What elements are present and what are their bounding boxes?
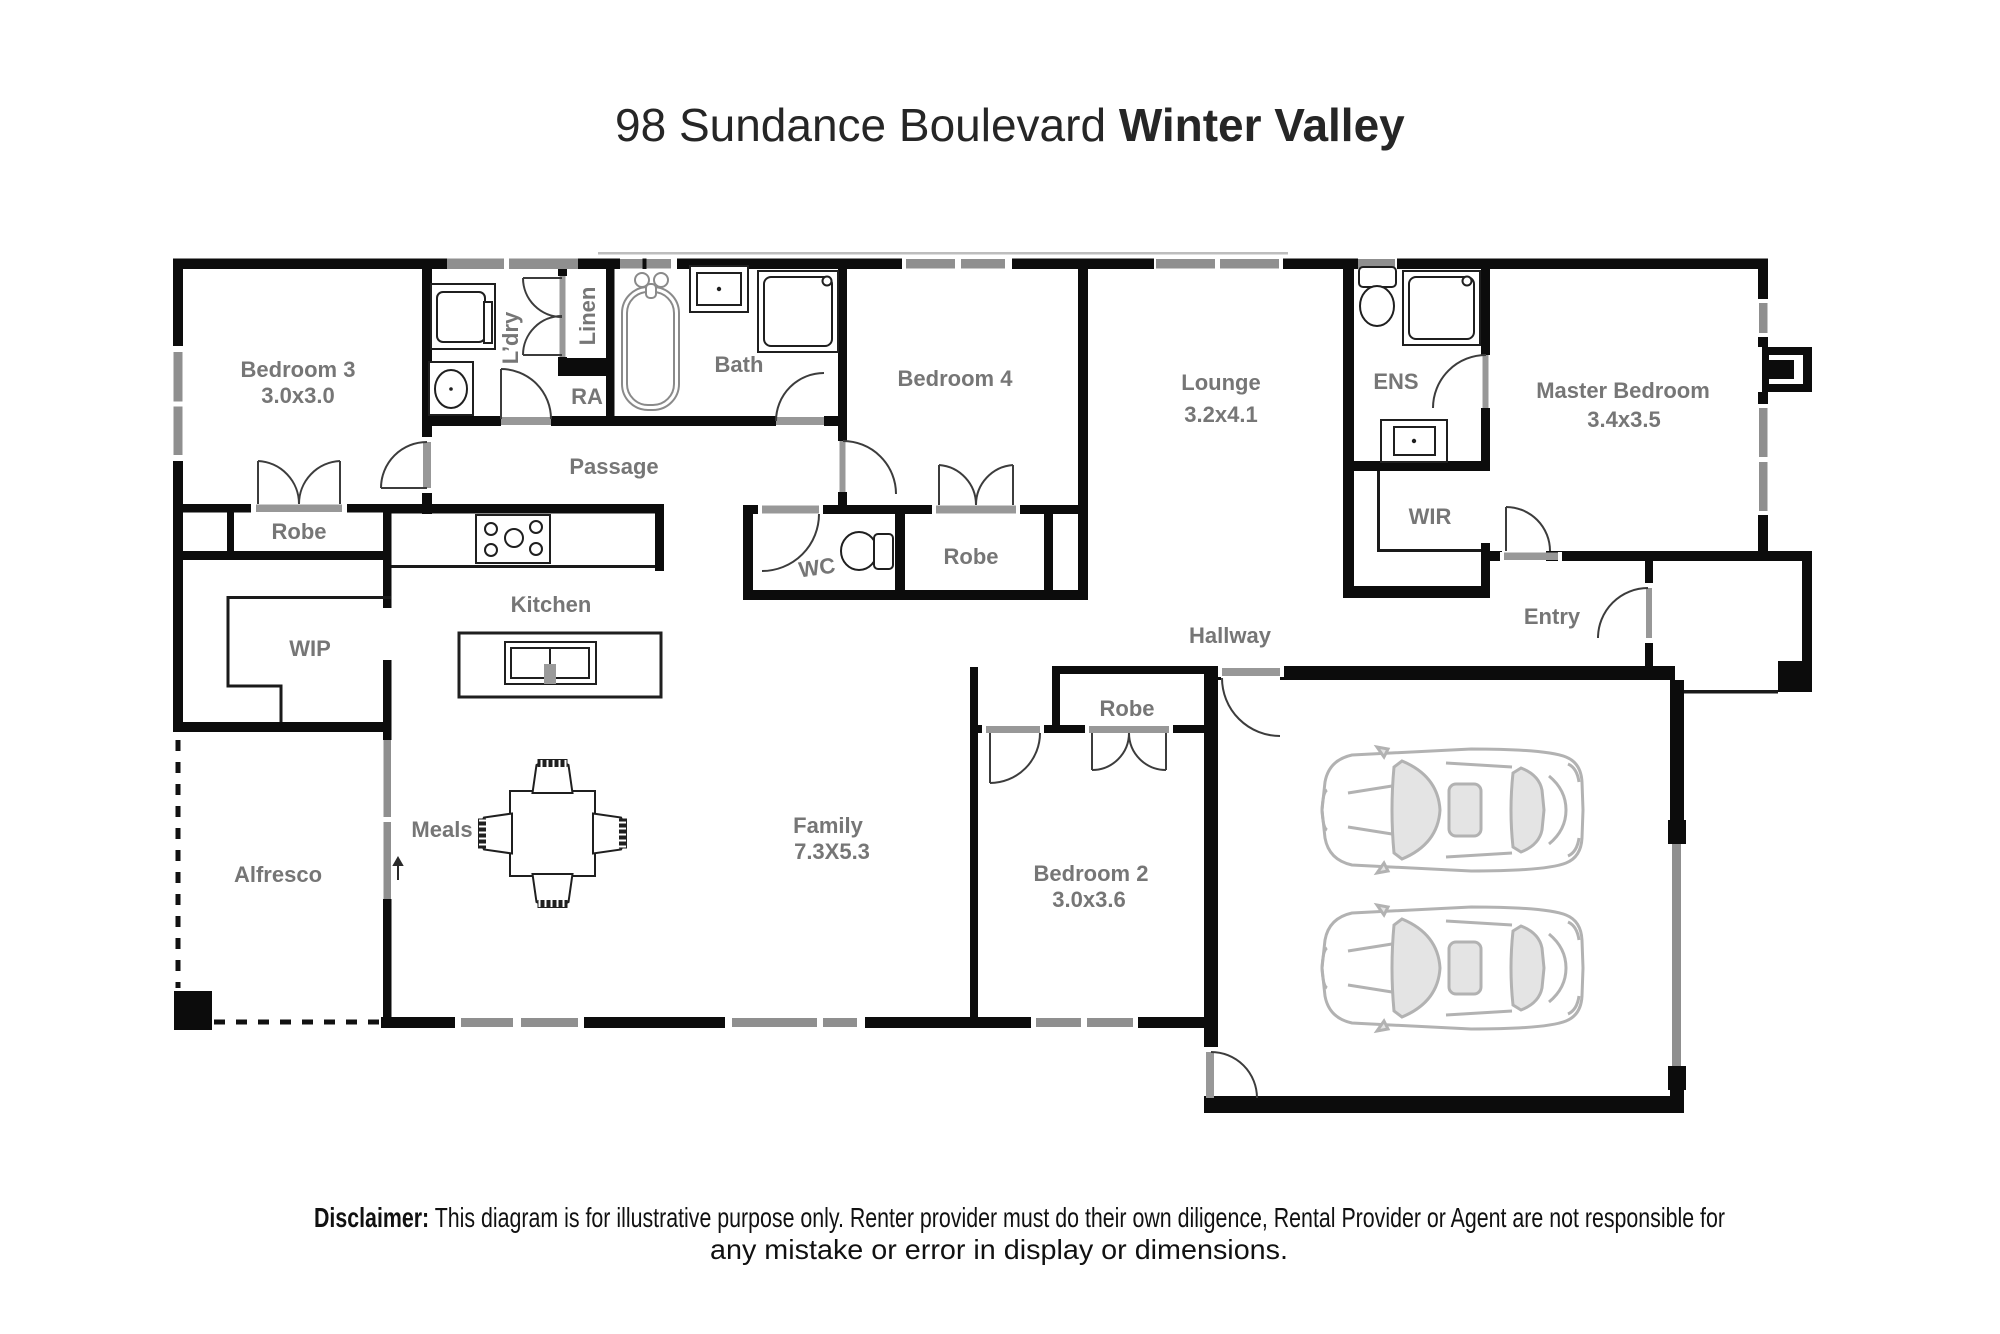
svg-text:Lounge: Lounge (1181, 370, 1260, 395)
svg-text:Bath: Bath (715, 352, 764, 377)
svg-text:WC: WC (797, 553, 837, 583)
svg-text:Family: Family (793, 813, 863, 838)
svg-text:3.0x3.0: 3.0x3.0 (261, 383, 334, 408)
svg-text:RA: RA (571, 384, 603, 409)
svg-text:Kitchen: Kitchen (511, 592, 592, 617)
svg-text:Alfresco: Alfresco (234, 862, 322, 887)
svg-text:Bedroom 4: Bedroom 4 (898, 366, 1014, 391)
svg-text:Bedroom 2: Bedroom 2 (1034, 861, 1149, 886)
svg-text:Entry: Entry (1524, 604, 1581, 629)
svg-text:Linen: Linen (575, 287, 600, 346)
svg-text:any mistake or error in displa: any mistake or error in display or dimen… (710, 1234, 1288, 1265)
svg-text:Master Bedroom: Master Bedroom (1536, 378, 1710, 403)
svg-text:Robe: Robe (1100, 696, 1155, 721)
svg-text:98 Sundance Boulevard Winter V: 98 Sundance Boulevard Winter Valley (615, 99, 1405, 151)
svg-text:Hallway: Hallway (1189, 623, 1272, 648)
svg-text:Meals: Meals (411, 817, 472, 842)
svg-text:Robe: Robe (272, 519, 327, 544)
svg-text:WIP: WIP (289, 636, 331, 661)
svg-text:Disclaimer: This diagram is fo: Disclaimer: This diagram is for illustra… (314, 1202, 1725, 1233)
svg-text:Robe: Robe (944, 544, 999, 569)
svg-text:WIR: WIR (1409, 504, 1452, 529)
svg-text:3.4x3.5: 3.4x3.5 (1587, 407, 1660, 432)
svg-text:7.3X5.3: 7.3X5.3 (794, 839, 870, 864)
svg-text:ENS: ENS (1373, 369, 1418, 394)
svg-text:3.0x3.6: 3.0x3.6 (1052, 887, 1125, 912)
svg-text:3.2x4.1: 3.2x4.1 (1184, 402, 1257, 427)
svg-text:Bedroom 3: Bedroom 3 (241, 357, 356, 382)
svg-text:Passage: Passage (569, 454, 658, 479)
svg-text:L’dry: L’dry (498, 311, 523, 364)
